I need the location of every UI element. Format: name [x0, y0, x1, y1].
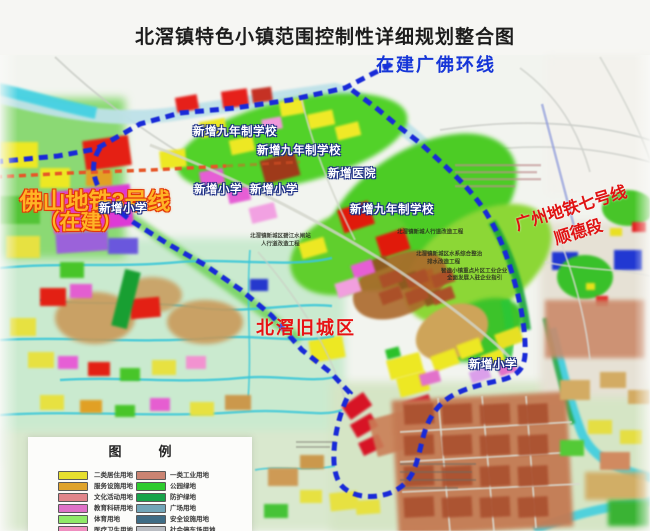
map-shape — [403, 496, 434, 518]
map-shape — [479, 403, 510, 425]
map-title: 北滘镇特色小镇范围控制性详细规划整合图 — [0, 22, 650, 49]
label-new-primary-school-3: 新增小学 — [250, 181, 298, 197]
map-shape — [150, 398, 170, 411]
map-shape — [108, 238, 138, 254]
map-shape — [517, 465, 548, 487]
map-shape — [268, 468, 298, 486]
map-shape — [300, 490, 322, 503]
legend-swatch — [58, 526, 88, 531]
label-new-primary-school-2: 新增小学 — [194, 181, 242, 197]
map-shape — [296, 441, 336, 443]
map-annotation: 北滘镇新城人行道改造工程 — [397, 227, 463, 235]
map-shape — [40, 288, 66, 306]
label-new-hospital: 新增医院 — [328, 165, 376, 181]
legend-panel: 图 例 二类居住用地服务设施用地文化活动用地教育科研用地体育用地医疗卫生用地一类… — [28, 437, 252, 531]
map-shape — [455, 185, 515, 187]
map-annotation: 人行道改造工程 — [261, 239, 300, 247]
map-shape — [60, 262, 84, 278]
map-shape — [28, 352, 54, 368]
map-shape — [620, 430, 642, 444]
map-shape — [560, 440, 584, 456]
map-shape — [400, 463, 476, 465]
map-shape — [600, 452, 630, 470]
legend-title: 图 例 — [28, 441, 252, 460]
legend-swatch — [58, 482, 88, 491]
map-shape — [517, 496, 548, 518]
map-shape — [441, 403, 472, 425]
map-shape — [10, 318, 36, 336]
legend-label: 安全设施用地 — [170, 515, 209, 524]
legend-swatch — [58, 493, 88, 502]
map-annotation: 全面发展入驻企业指引 — [447, 273, 502, 281]
map-shape — [517, 403, 548, 425]
map-shape — [545, 300, 645, 358]
map-shape — [58, 356, 78, 369]
label-new-nine-year-school-3: 新增九年制学校 — [350, 201, 434, 217]
label-new-nine-year-school-2: 新增九年制学校 — [257, 142, 341, 158]
label-new-nine-year-school-1: 新增九年制学校 — [193, 123, 277, 139]
map-shape — [614, 250, 642, 270]
legend-swatch — [136, 493, 166, 502]
label-old-town: 北滘旧城区 — [256, 314, 356, 340]
map-shape — [441, 434, 472, 456]
map-shape — [82, 135, 132, 171]
map-shape — [264, 504, 288, 518]
label-guangfo-ring-line: 在建广佛环线 — [376, 51, 496, 77]
map-shape — [40, 395, 64, 410]
map-shape — [190, 402, 214, 416]
map-shape — [248, 250, 250, 400]
map-annotation: 排水改造工程 — [427, 257, 460, 265]
map-shape — [560, 380, 590, 400]
map-shape — [608, 500, 650, 526]
legend-label: 教育科研用地 — [94, 504, 133, 513]
legend-label: 社会停车场用地 — [170, 526, 216, 531]
map-shape — [628, 390, 650, 404]
legend-swatch — [136, 504, 166, 513]
map-shape — [167, 300, 243, 344]
map-shape — [356, 499, 381, 515]
map-shape — [296, 446, 330, 448]
map-shape — [455, 178, 541, 180]
legend-swatch — [136, 471, 166, 480]
legend-label: 二类居住用地 — [94, 471, 133, 480]
legend-swatch — [136, 515, 166, 524]
map-shape — [88, 362, 110, 376]
map-shape — [0, 142, 38, 168]
map-shape — [479, 434, 510, 456]
map-shape — [225, 395, 251, 410]
legend-label: 一类工业用地 — [170, 471, 209, 480]
map-shape — [80, 400, 102, 413]
map-shape — [6, 236, 40, 258]
legend-label: 防护绿地 — [170, 493, 196, 502]
map-shape — [557, 255, 613, 299]
map-shape — [441, 496, 472, 518]
map-shape — [600, 372, 626, 388]
legend-swatch — [136, 526, 166, 531]
legend-label: 体育用地 — [94, 515, 120, 524]
map-shape — [585, 472, 647, 500]
map-shape — [588, 420, 612, 434]
map-shape — [400, 487, 458, 489]
map-shape — [186, 356, 206, 369]
map-shape — [455, 164, 541, 166]
map-shape — [250, 279, 268, 291]
legend-label: 文化活动用地 — [94, 493, 133, 502]
map-shape — [70, 284, 92, 298]
map-shape — [455, 171, 537, 173]
legend-label: 广场用地 — [170, 504, 196, 513]
planning-map-image: 北滘镇特色小镇范围控制性详细规划整合图 在建广佛环线 佛山地铁3号线 （在建） … — [0, 0, 650, 531]
map-shape — [517, 434, 548, 456]
map-shape — [120, 368, 140, 381]
legend-label: 服务设施用地 — [94, 482, 133, 491]
map-shape — [479, 496, 510, 518]
legend-swatch — [136, 482, 166, 491]
legend-label: 医疗卫生用地 — [94, 526, 133, 531]
label-new-primary-school-4: 新增小学 — [469, 356, 517, 372]
map-shape — [115, 405, 135, 417]
map-shape — [479, 465, 510, 487]
map-shape — [441, 465, 472, 487]
map-shape — [152, 360, 176, 375]
legend-label: 公园绿地 — [170, 482, 196, 491]
legend-swatch — [58, 471, 88, 480]
label-new-primary-school-1: 新增小学 — [99, 200, 147, 216]
legend-swatch — [58, 515, 88, 524]
legend-swatch — [58, 504, 88, 513]
map-shape — [586, 283, 595, 290]
map-shape — [300, 455, 324, 469]
